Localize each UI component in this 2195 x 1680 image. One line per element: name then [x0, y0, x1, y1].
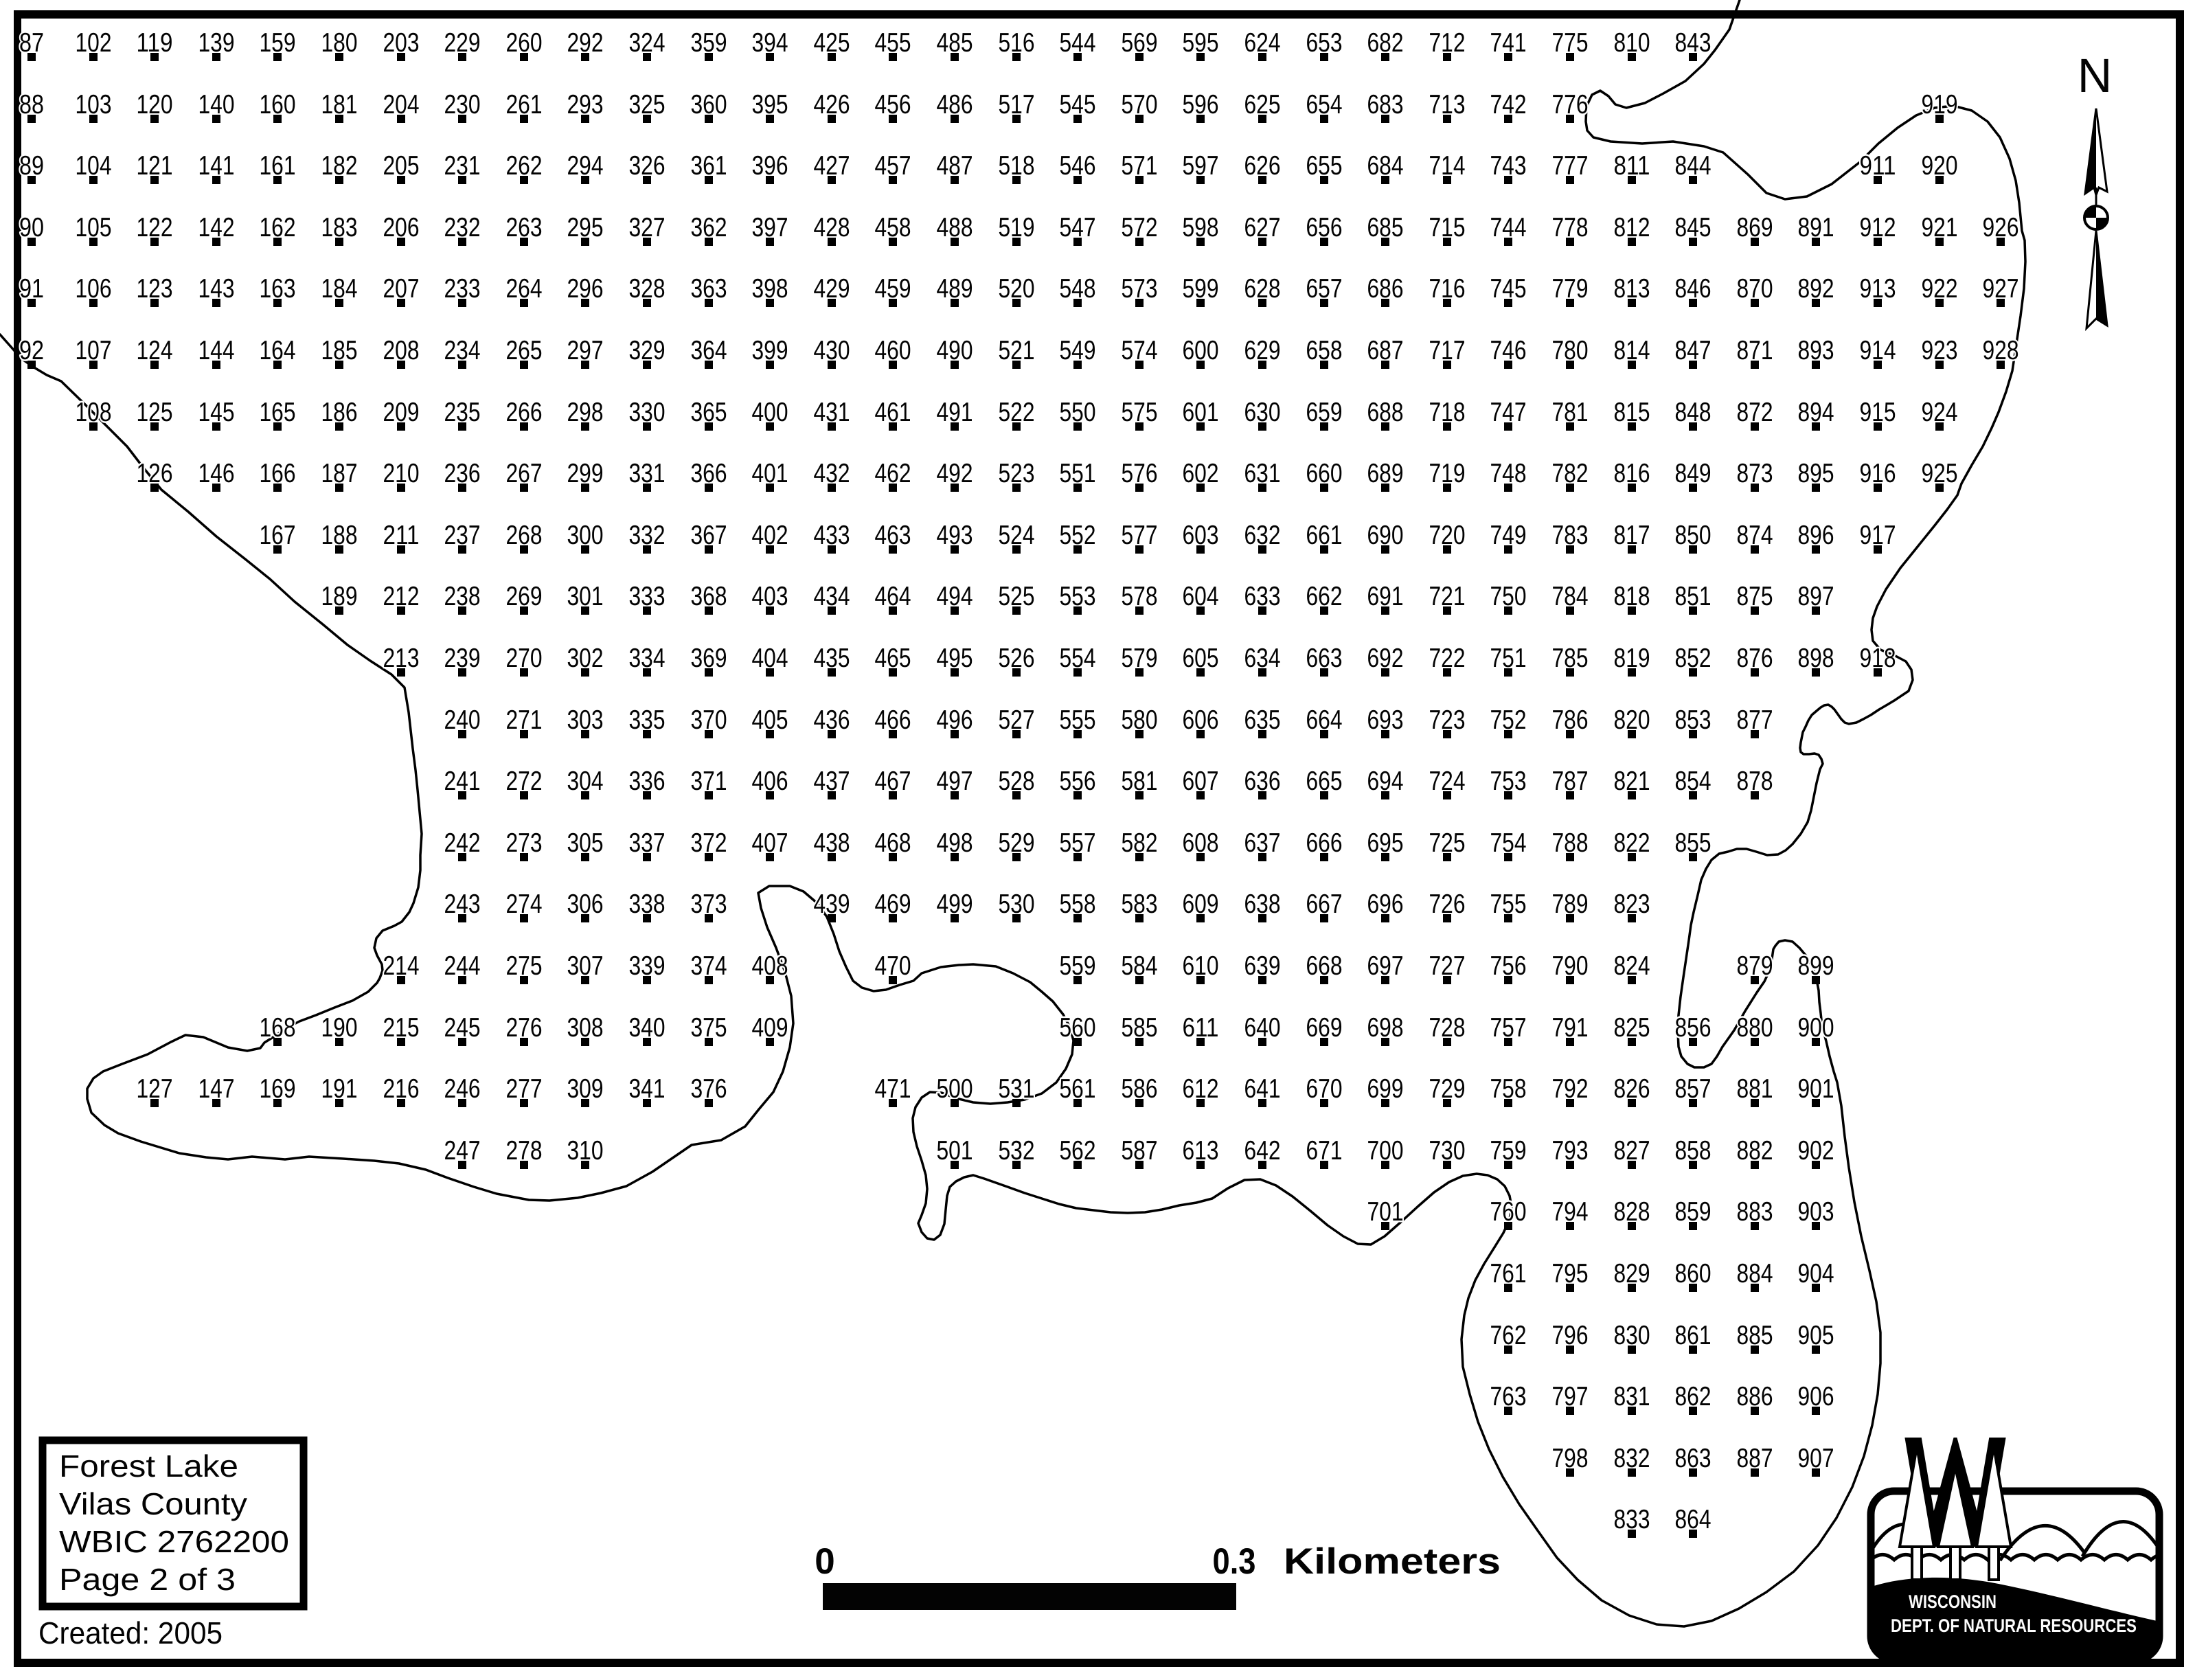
svg-text:0.3: 0.3	[1213, 1541, 1256, 1582]
svg-text:WISCONSIN: WISCONSIN	[1909, 1591, 1997, 1612]
svg-text:0: 0	[815, 1541, 834, 1582]
svg-text:Kilometers: Kilometers	[1284, 1541, 1501, 1582]
svg-text:WBIC 2762200: WBIC 2762200	[59, 1524, 289, 1559]
svg-text:Page 2 of 3: Page 2 of 3	[59, 1562, 236, 1597]
svg-text:N: N	[2078, 49, 2113, 102]
svg-text:Forest Lake: Forest Lake	[59, 1449, 238, 1484]
svg-text:DEPT. OF NATURAL RESOURCES: DEPT. OF NATURAL RESOURCES	[1891, 1615, 2137, 1636]
svg-text:Vilas County: Vilas County	[59, 1486, 248, 1521]
svg-text:Created: 2005: Created: 2005	[38, 1615, 223, 1650]
